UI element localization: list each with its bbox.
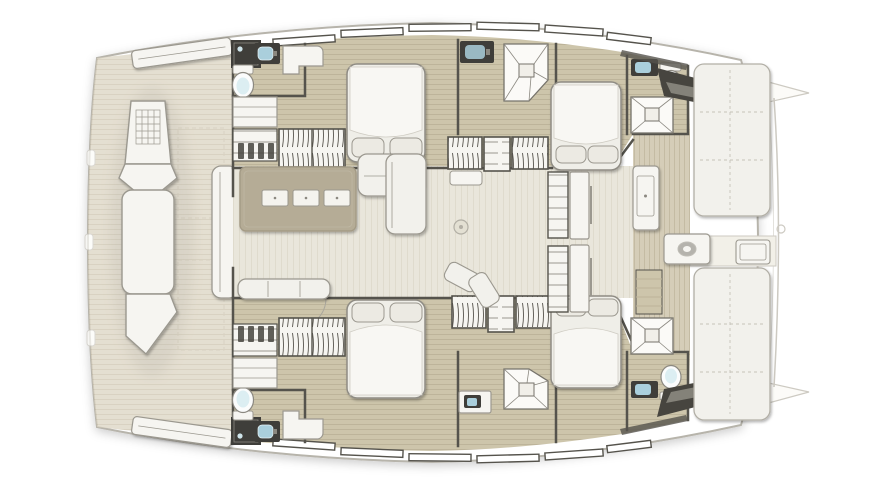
drawer-knob [274,197,277,200]
bow-cleat-2 [85,234,93,250]
bench-seat [450,171,482,185]
shower-head [237,433,242,438]
toilet-bowl-inner [665,369,677,384]
settee-back [238,279,330,299]
cockpit-table [633,166,659,230]
stern-console [664,234,710,264]
shelf-column [548,246,568,312]
dresser [233,97,277,127]
bed-blanket [350,325,422,395]
drawer-knob [336,197,339,200]
bed-pillow [390,303,422,322]
shelf-column [548,172,568,238]
stern-sunpad-top [694,64,770,216]
sink-basin [465,45,485,59]
vanity-unit [570,172,589,239]
double-bed-forward-port [347,300,425,398]
catamaran-floorplan-svg [0,0,888,485]
bed-pillow [588,146,618,163]
window-strip [477,454,539,463]
sink-basin [258,47,273,60]
shower-head [237,46,242,51]
stern-sunpad-bottom [694,268,770,420]
double-bed-aft-starboard [551,82,621,170]
cockpit-steps [636,270,662,314]
sink-basin [635,384,651,395]
sink-faucet [273,51,277,56]
console-winch-cap [683,246,691,252]
sink-basin [258,425,273,438]
bed-pillow [556,146,586,163]
wardrobe-hangers [448,137,482,169]
sink-faucet [486,49,490,55]
dresser [233,358,277,388]
floorplan-canvas [0,0,888,485]
toilet-bowl-inner [237,78,250,95]
shower-drain [519,64,534,77]
wardrobe-hangers [512,137,548,169]
saloon-settee [238,279,330,299]
double-bed-forward-starboard [347,64,425,162]
sink-basin [635,62,651,73]
pod-body [122,190,174,294]
stern-step-pad [736,240,770,264]
shower-drain [645,108,659,121]
window-strip [477,22,539,31]
bed-blanket [554,328,618,385]
cockpit-table-dot [644,195,647,198]
sink-basin [467,398,477,406]
bed-blanket [350,67,422,137]
sink-faucet [273,429,277,434]
bed-blanket [554,85,618,144]
window-strip [409,24,471,32]
window-strip [409,454,471,462]
bow-cleat-1 [87,150,95,166]
shower-drain [645,329,659,342]
bow-cleat-3 [87,330,95,346]
toilet-bowl-inner [237,391,250,408]
saloon-table-island [240,167,356,231]
wardrobe-hangers [516,296,552,328]
shower-drain [519,383,534,396]
vanity-unit [570,245,589,312]
locker-shelves [484,137,510,171]
drawer-knob [305,197,308,200]
bed-pillow [352,303,384,322]
floor-ring-dot [459,225,463,229]
bed-pillow [588,299,618,316]
